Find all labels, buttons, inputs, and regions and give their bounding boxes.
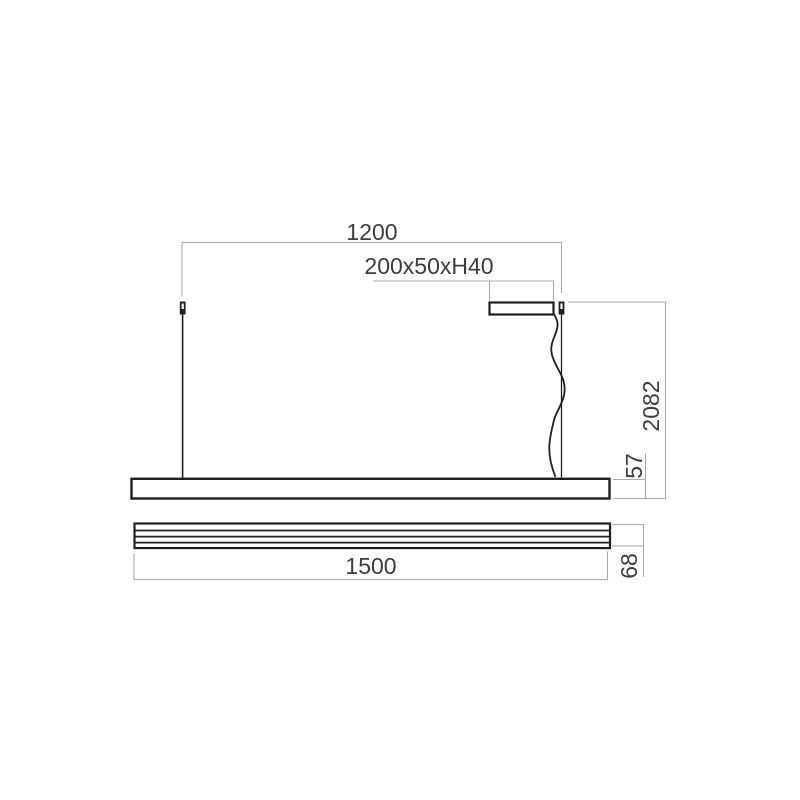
lamp-body-side-view [132,479,610,499]
left-mount-slot [182,304,184,310]
pendant-lamp-technical-drawing: 1200 200x50xH40 2082 57 1500 68 [0,0,800,800]
dim-1200-label: 1200 [346,219,397,245]
dim-57-label: 57 [621,453,647,479]
dim-canopy-leader [373,281,554,301]
dim-1500-label: 1500 [345,553,396,579]
dimension-drawing-page: 1200 200x50xH40 2082 57 1500 68 [0,0,800,800]
power-cable [549,314,564,478]
fixture-layer [132,302,611,549]
dim-68-label: 68 [616,553,642,579]
dim-canopy-label: 200x50xH40 [364,253,493,279]
dim-2082-label: 2082 [638,380,664,431]
lamp-body-front-view [135,524,611,549]
right-mount-slot [560,304,562,310]
canopy-box [490,303,554,315]
